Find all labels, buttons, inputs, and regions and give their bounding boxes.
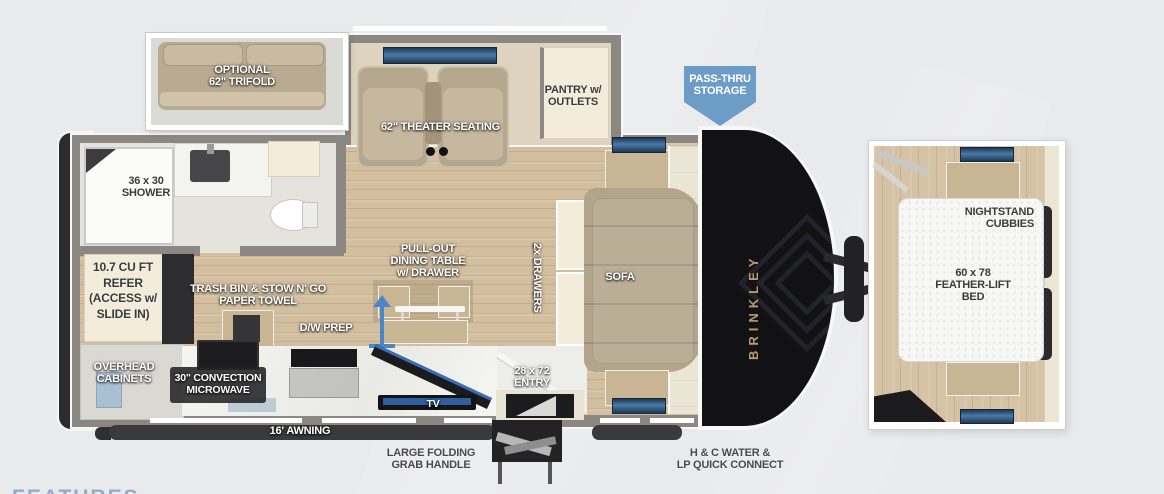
bed-footboard [946,362,1020,396]
features-heading: FEATURES [12,486,140,494]
trash-bin [233,315,260,342]
label-water-connect: H & C WATER & LP QUICK CONNECT [652,447,808,471]
label-microwave: 30" CONVECTION MICROWAVE [172,373,264,396]
label-trash-bin: TRASH BIN & STOW N' GO PAPER TOWEL [172,283,344,307]
cooktop [197,340,259,370]
bathroom-cabinet [268,141,320,177]
label-shower: 36 x 30 SHOWER [102,175,190,199]
slide-trim [600,418,640,423]
dining-table [395,306,465,312]
label-entry: 28 x 72 ENTRY [503,365,561,389]
label-optional-trifold: OPTIONAL 62" TRIFOLD [157,64,327,88]
trifold-sofa-back-cushion [246,44,324,66]
label-grab-handle: LARGE FOLDING GRAB HANDLE [372,447,490,471]
label-nightstand: NIGHTSTAND CUBBIES [948,206,1034,230]
label-bed: 60 x 78 FEATHER-LIFT BED [924,267,1022,303]
toilet-tank [302,202,318,228]
kitchen-sink [289,368,359,398]
bathroom-sink [190,150,230,182]
bathroom-wall [336,135,346,253]
label-pass-thru-storage: PASS-THRU STORAGE [684,73,756,97]
inset-cabinet-column [1044,146,1059,422]
slide-trim [150,418,302,423]
label-theater-seating: 62" THEATER SEATING [358,121,523,133]
trifold-sofa-front [160,92,324,106]
label-dw-prep: D/W PREP [294,322,358,334]
label-pantry: PANTRY w/ OUTLETS [535,84,611,108]
bathroom-wall [240,246,344,256]
label-tv: TV [418,399,448,411]
dining-bench [382,320,468,344]
label-awning: 16' AWNING [252,425,348,437]
hitch-post [844,236,864,322]
floorplan-canvas: PASS-THRU STORAGE [0,0,1164,494]
faucet-icon [207,144,214,154]
slide-trim [650,418,694,423]
bedroom-window-bottom [612,398,666,414]
drawer-unit [556,200,586,270]
theater-window [383,47,497,64]
trifold-sofa-back-cushion [163,44,243,66]
range-vent [291,349,357,367]
theater-console [425,82,441,144]
label-refer: 10.7 CU FT REFER (ACCESS w/ SLIDE IN) [83,260,163,322]
label-dining-table: PULL-OUT DINING TABLE w/ DRAWER [367,243,489,279]
slide-trim [322,418,416,423]
bedroom-window-top [612,137,666,153]
cupholder-icon [426,147,435,156]
label-drawers: 2x DRAWERS [527,228,543,328]
entry-step-leg [498,462,502,484]
inset-window-top [960,147,1014,162]
cupholder-icon [439,147,448,156]
slide-trim [444,418,492,423]
bed-headboard [946,162,1020,200]
drawer-unit [556,272,586,346]
brand-logotype: BRINKLEY [746,200,761,360]
label-overhead-cabinets: OVERHEAD CABINETS [78,361,170,385]
pull-out-arrow-icon [380,306,384,346]
bottom-rail-right [592,425,682,440]
dining-chair [438,286,470,318]
slide-trim [353,26,607,31]
nightstand-top [605,150,669,192]
label-sofa: SOFA [596,271,644,283]
pull-out-arrow-head-icon [373,295,391,307]
inset-window-bottom [960,409,1014,424]
entry-step-leg [548,462,552,484]
